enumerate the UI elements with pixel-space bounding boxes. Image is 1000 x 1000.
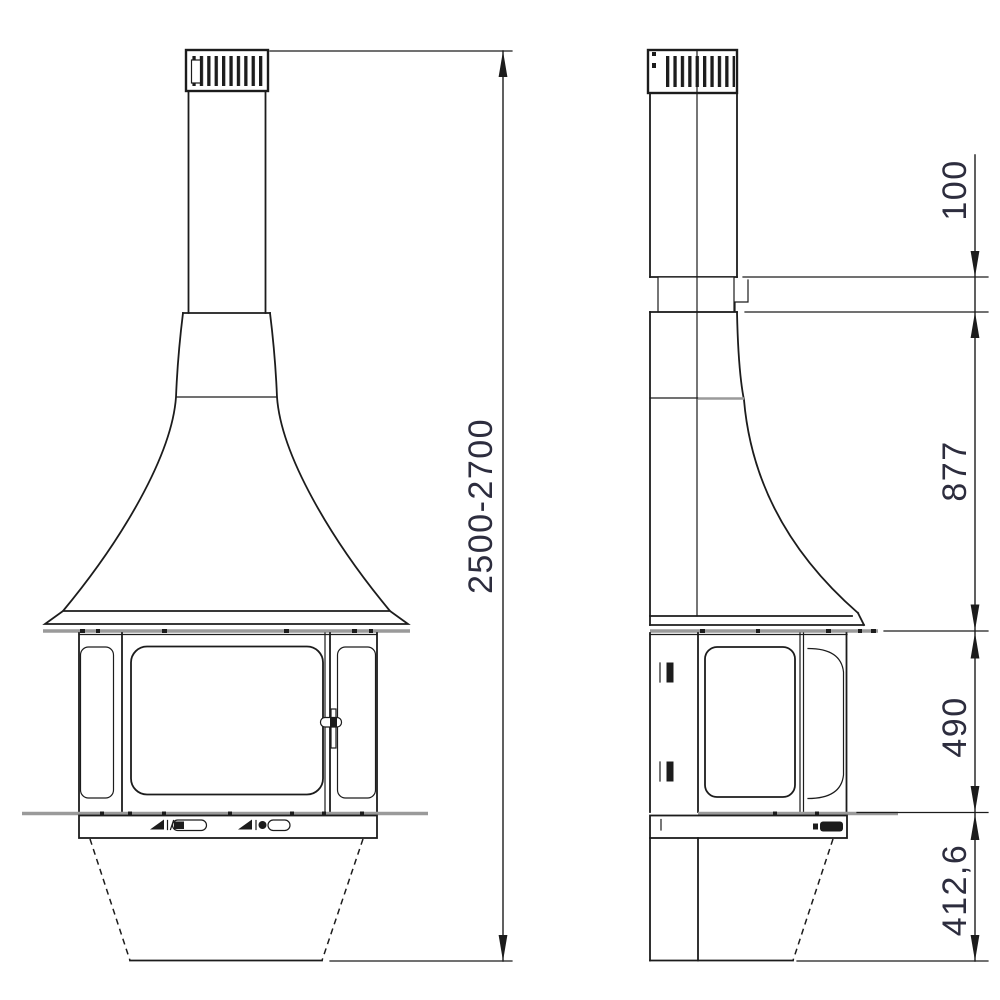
side-flue-collar <box>650 277 748 312</box>
handle-latch-bar <box>331 709 336 748</box>
cap-grille-slot <box>192 60 201 83</box>
arrowhead-down-icon <box>499 935 508 961</box>
front-right-panel <box>338 647 376 798</box>
pipe-sides <box>189 91 266 313</box>
side-chimney-cap <box>648 50 737 93</box>
cap-rivet <box>652 63 656 68</box>
pedestal-left-edge <box>90 839 130 961</box>
arrowhead-down-icon <box>971 786 980 812</box>
dimension-firebox-height: 490 <box>936 696 974 757</box>
side-firebox <box>650 633 847 812</box>
side-chimney-pipe <box>650 93 737 277</box>
collar-outline <box>658 277 734 312</box>
side-air-lever-tip <box>813 824 818 830</box>
arrowhead-up-icon <box>971 814 980 840</box>
front-left-panel <box>81 647 114 798</box>
handle-lock <box>330 718 337 727</box>
firebox-back-walls <box>650 633 698 812</box>
arrowhead-down-icon <box>971 605 980 631</box>
arrowhead-down-icon <box>971 935 980 961</box>
air-dot-icon <box>259 821 267 829</box>
side-base-band <box>650 816 847 839</box>
side-door-curve <box>808 649 844 799</box>
side-air-lever <box>820 822 843 832</box>
side-window <box>705 647 795 797</box>
base-height-label: 412,6 <box>936 844 974 937</box>
back-vent-bar <box>667 663 674 683</box>
pedestal-right-edge <box>322 839 363 961</box>
side-door-frame <box>800 633 804 812</box>
arrowhead-up-icon <box>971 633 980 659</box>
front-hood <box>45 313 408 624</box>
dimension-top-offset: 100 <box>936 159 974 220</box>
side-hood-rim <box>650 613 864 625</box>
arrowhead-down-icon <box>971 251 980 277</box>
arrowhead-up-icon <box>499 51 508 77</box>
firebox-height-label: 490 <box>936 696 974 757</box>
hood-left-curve <box>63 313 183 611</box>
front-door-glass <box>131 647 323 795</box>
front-pedestal <box>90 839 363 961</box>
back-vent-bar <box>667 762 674 782</box>
side-view <box>648 50 898 961</box>
air-slider-knob <box>174 822 184 830</box>
cap-rivet <box>652 52 656 56</box>
hood-right-curve <box>270 313 390 611</box>
front-chimney-cap <box>186 50 268 91</box>
technical-drawing-page: 2500-2700 <box>0 0 1000 1000</box>
pedestal-front-edge <box>793 839 833 961</box>
dimension-column-right: 100 877 490 412,6 <box>743 155 988 961</box>
hood-height-label: 877 <box>936 440 974 501</box>
dimension-hood-height: 877 <box>936 440 974 501</box>
front-chimney-pipe <box>189 91 266 313</box>
front-hood-rim <box>45 611 408 624</box>
front-door-frame <box>122 633 330 812</box>
fireplace-dimension-drawing: 2500-2700 <box>0 0 1000 1000</box>
front-base-band <box>79 816 377 839</box>
cap-grille-icon <box>665 56 735 87</box>
base-band-outline <box>79 816 377 839</box>
side-pedestal <box>650 838 833 961</box>
pipe-sides <box>650 93 737 277</box>
overall-height-label: 2500-2700 <box>462 418 500 594</box>
side-wall-bracket <box>735 280 748 311</box>
dimension-base-height: 412,6 <box>936 844 974 937</box>
arrowhead-up-icon <box>971 312 980 338</box>
side-hood <box>650 312 864 625</box>
cap-grille-icon <box>190 56 264 86</box>
top-offset-label: 100 <box>936 159 974 220</box>
hood-front-curve <box>737 312 858 613</box>
air-slider-slot <box>268 820 290 831</box>
pedestal-back-edges <box>650 838 698 961</box>
front-view <box>22 50 428 961</box>
front-firebox <box>79 633 377 812</box>
